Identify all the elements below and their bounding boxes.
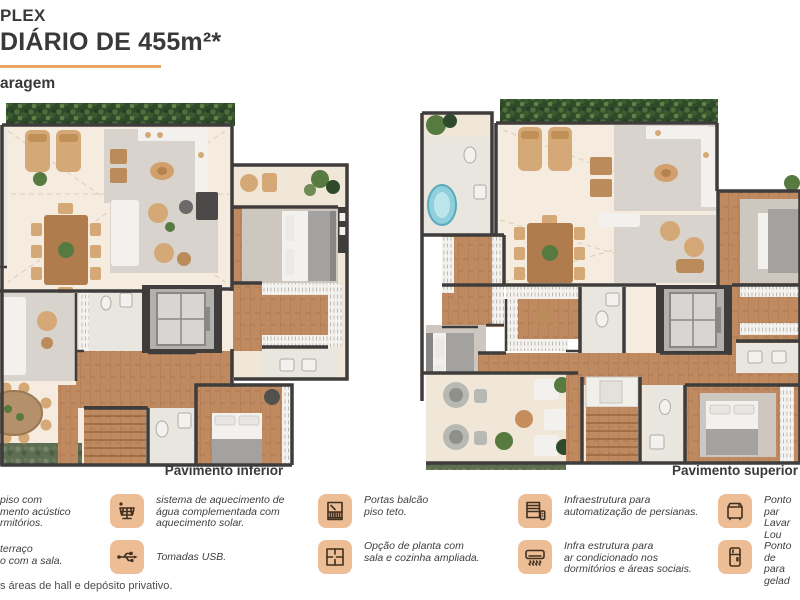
footnote: s áreas de hall e depósito privativo. [0,580,172,592]
legend-item-fridge: Ponto de para gelad [718,540,800,587]
bathroom-suite [262,349,338,379]
stairs [586,377,638,463]
closet [262,283,342,347]
hedge-top [500,99,718,123]
label-pavimento-superior: Pavimento superior [598,463,798,478]
legend-item-solar-heating: sistema de aquecimento de água complemen… [110,494,284,530]
closet-center [506,287,580,351]
legend-item-blinds: Infraestrutura para automatização de per… [518,494,698,528]
terrace-lower [426,373,582,470]
subtitle-garage: aragem [0,75,55,93]
legend-item-acoustic-floor: piso com mento acústico rmitórios. [0,494,71,530]
legend-item-terrace: terraço o com a sala. [0,543,62,567]
dishwasher-icon [718,494,752,528]
living-area [598,213,716,283]
legend-item-air-conditioning: Infra estrutura para ar condicionado nos… [518,540,692,576]
elevator [142,285,222,353]
balcony-door-icon [318,494,352,528]
blinds-icon [518,494,552,528]
bathroom-center [580,287,624,353]
lavabo [78,289,142,351]
title-line-2: DIÁRIO DE 455m²* [0,28,221,57]
usb-icon [110,540,144,574]
refrigerator-icon [718,540,752,574]
elevator [656,285,732,355]
hedge-top [6,103,235,126]
legend-item-usb: Tomadas USB. [110,540,226,574]
tv-room [0,293,76,381]
legend-item-balcony-doors: Portas balcão piso teto. [318,494,428,528]
bedroom-lower-right [685,385,800,463]
label-pavimento-inferior: Pavimento inferior [124,463,324,478]
title-line-1: PLEX [0,6,46,26]
bedroom-suite [233,207,347,285]
bathroom-lower [148,408,196,465]
brochure-page: PLEX DIÁRIO DE 455m²* aragem [0,0,800,600]
legend-item-dishwasher: Ponto par Lavar Lou [718,494,800,541]
living-room-upper [104,128,208,203]
bathroom-tub [422,137,492,235]
legend-item-layout-option: Opção de planta com sala e cozinha ampli… [318,540,480,574]
sitting-area-middle [110,192,218,273]
floor-plan-icon [318,540,352,574]
title-accent-rule [0,65,161,68]
stairs [84,406,146,465]
bathroom-lower [645,385,685,463]
air-conditioner-icon [518,540,552,574]
floor-plan-inferior [0,97,350,469]
solar-panel-icon [110,494,144,528]
floor-plan-superior [418,95,800,470]
